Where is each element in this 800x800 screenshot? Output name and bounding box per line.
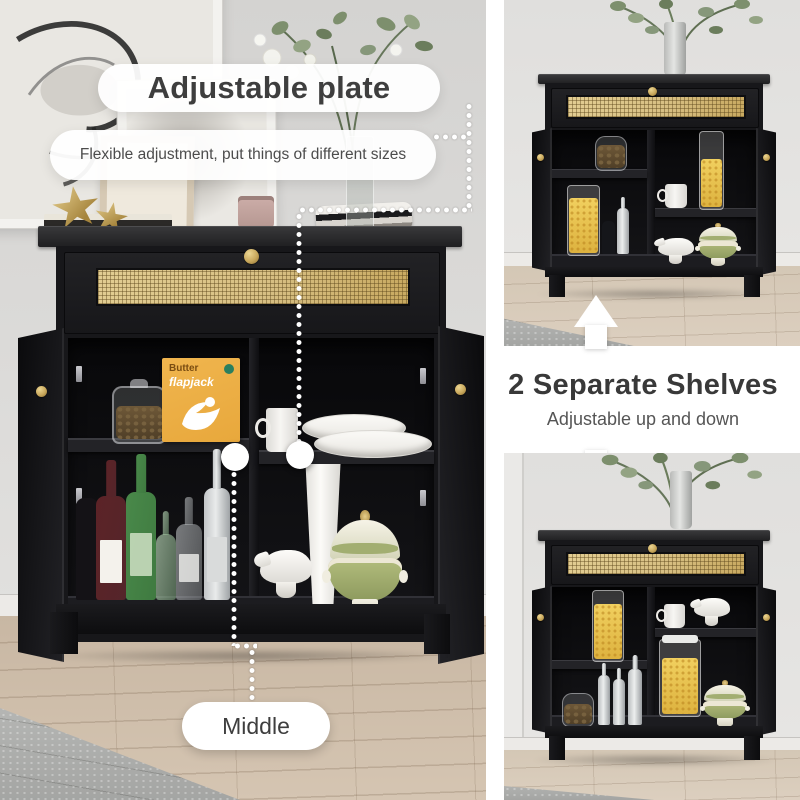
silver-bottle-label [207, 537, 227, 582]
cabinet-leg [744, 275, 760, 297]
small-green-bottle [156, 534, 176, 600]
shelf-marker-dot [221, 443, 249, 471]
shelves-subtitle: Adjustable up and down [547, 409, 739, 430]
wine-bottle [96, 496, 126, 600]
left-cabinet-door [532, 586, 552, 734]
silver-vase [670, 471, 692, 529]
feature-title-pill: Adjustable plate [98, 64, 440, 112]
cereal-dispenser-tall [699, 131, 724, 210]
doorway-edge [504, 453, 524, 737]
rattan-drawer-panel [96, 268, 410, 306]
tureen-body [698, 241, 738, 258]
shelf-marker-dot [286, 441, 314, 469]
cabinet-floor-shadow [534, 288, 774, 300]
gravy-boat-foot [276, 582, 296, 598]
cabinet-base-rail [56, 604, 446, 634]
green-tureen [702, 683, 748, 727]
shelves-title: 2 Separate Shelves [508, 369, 778, 402]
middle-marker-label: Middle [222, 713, 290, 740]
left-door-knob [36, 386, 47, 397]
leader-dotted-line [249, 648, 255, 706]
metal-bottle [613, 679, 625, 725]
rattan-drawer-panel [566, 552, 746, 576]
dark-bottle [602, 221, 615, 254]
door-knob [537, 614, 544, 621]
canister-contents [597, 145, 625, 168]
right-cabinet-door [756, 586, 776, 736]
door-hinge [76, 366, 82, 382]
clear-bottle [176, 524, 202, 600]
door-hinge [420, 490, 426, 506]
leader-dotted-line [296, 212, 302, 442]
gravy-boat [690, 597, 732, 628]
middle-marker-pill: Middle [182, 702, 330, 750]
clear-bottle-label [179, 554, 199, 581]
cereal-container [659, 639, 701, 717]
tureen-lid-band [700, 236, 735, 241]
dove-illustration [174, 390, 226, 436]
white-mug [664, 604, 685, 628]
feature-title: Adjustable plate [148, 70, 391, 106]
cabinet-interior [552, 587, 756, 727]
door-hinge [420, 368, 426, 384]
cabinet-base-rail [545, 726, 763, 738]
fairtrade-dot [224, 364, 234, 374]
white-mug [665, 184, 687, 208]
glass-canister [595, 136, 627, 171]
door-knob [763, 154, 770, 161]
cabinet-leg [744, 736, 760, 760]
tureen-body [328, 558, 403, 602]
cookie-jar-contents [116, 406, 162, 439]
cereal-fill [701, 159, 722, 207]
glass-jar [562, 693, 594, 727]
cabinet-top [38, 226, 462, 247]
flapjack-box-label-2: flapjack [169, 375, 214, 389]
silver-bottle [204, 488, 230, 600]
feature-subtitle-pill: Flexible adjustment, put things of diffe… [50, 130, 436, 180]
right-door-knob [455, 384, 466, 395]
wine-bottle-label [100, 540, 123, 584]
cabinet-floor-shadow [530, 753, 780, 767]
cereal-dispenser [592, 590, 624, 662]
green-tureen [697, 225, 739, 266]
shelves-callout-band: 2 Separate Shelves Adjustable up and dow… [486, 346, 800, 453]
flapjack-box-label-1: Butter [169, 363, 198, 374]
pink-mug [238, 196, 274, 230]
green-bottle-label [130, 533, 153, 576]
metal-shaker [617, 208, 629, 254]
tureen-lid-band [332, 543, 398, 554]
gravy-boat [254, 546, 316, 602]
cabinet-base-rail [545, 267, 763, 277]
leader-dotted-line [466, 102, 472, 210]
cabinet-leg [549, 275, 565, 297]
leader-dotted-line [298, 207, 472, 213]
cabinet-leg [549, 736, 565, 760]
jar-contents [564, 704, 592, 725]
cookie-jar [112, 386, 166, 444]
metal-bottle [628, 669, 642, 725]
metal-bottle [598, 675, 610, 725]
tureen-body [703, 701, 747, 719]
container-lid [662, 635, 697, 643]
green-bottle [126, 492, 156, 600]
stacked-plate [314, 430, 432, 458]
adjust-up-arrow-shaft [585, 325, 607, 349]
dark-bottle [76, 498, 98, 600]
gravy-boat-foot [669, 255, 682, 264]
gravy-boat [654, 238, 696, 266]
leader-dotted-line [231, 470, 237, 646]
cookie-jar-lid [130, 379, 148, 388]
tureen-lid-band [706, 694, 745, 699]
left-cabinet-door [532, 128, 552, 272]
rattan-drawer-panel [566, 95, 746, 119]
mug-handle [656, 609, 667, 622]
flapjack-box: Butter flapjack [162, 358, 240, 442]
cereal-fill [662, 658, 699, 714]
silver-vase [664, 22, 686, 76]
gravy-boat-bowl [658, 238, 694, 256]
drawer-knob [648, 87, 657, 96]
cabinet-interior [552, 130, 756, 266]
drawer-knob [244, 249, 259, 264]
door-knob [763, 614, 770, 621]
photo-shelves-down [504, 453, 800, 800]
feature-subtitle: Flexible adjustment, put things of diffe… [80, 146, 406, 164]
door-knob [537, 154, 544, 161]
mug-handle [657, 189, 668, 202]
tureen-foot [711, 258, 725, 266]
cereal-dispenser [567, 185, 600, 256]
mug-handle [255, 418, 271, 438]
gravy-boat-bowl [260, 550, 312, 584]
gravy-boat-bowl [694, 598, 730, 617]
cereal-fill [569, 198, 598, 253]
drawer-knob [648, 544, 657, 553]
center-divider [647, 587, 655, 727]
cereal-fill [594, 604, 622, 659]
leader-dotted-line [432, 134, 470, 140]
gravy-boat-foot [705, 616, 718, 626]
cabinet-interior: Butter flapjack [68, 338, 434, 624]
product-feature-image: Butter flapjack [0, 0, 800, 800]
photo-shelves-up [504, 0, 800, 346]
right-cabinet-door [756, 128, 776, 276]
